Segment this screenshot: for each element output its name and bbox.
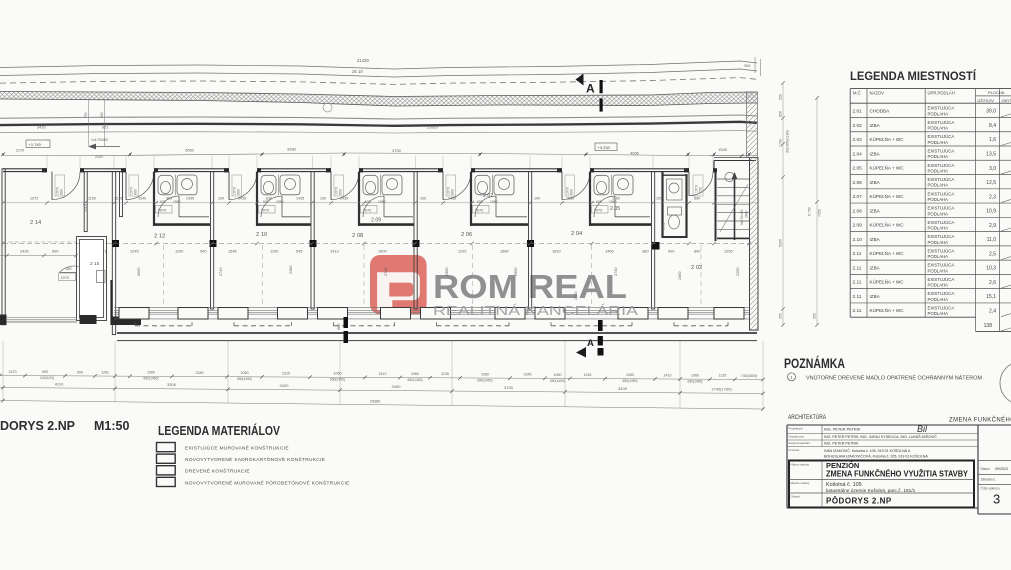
svg-text:ING. PETER PETRIK, ING. JURAJ: ING. PETER PETRIK, ING. JURAJ KYSELICA, … xyxy=(824,434,937,439)
svg-text:2740: 2740 xyxy=(574,292,578,300)
svg-text:EXISTUJÚCA: EXISTUJÚCA xyxy=(928,248,955,253)
svg-text:1560: 1560 xyxy=(378,200,386,204)
svg-text:2,5: 2,5 xyxy=(989,251,996,257)
svg-text:BOHUSLAVA IZAKOVIČOVÁ, Košolná: BOHUSLAVA IZAKOVIČOVÁ, Košolná č. 105, 9… xyxy=(824,454,928,459)
svg-text:2360: 2360 xyxy=(678,272,682,280)
svg-text:2470: 2470 xyxy=(9,370,17,374)
svg-text:7250: 7250 xyxy=(818,209,822,217)
svg-text:250: 250 xyxy=(813,313,817,319)
svg-text:1970: 1970 xyxy=(233,187,237,195)
svg-text:1150: 1150 xyxy=(88,196,96,200)
svg-text:900: 900 xyxy=(668,249,675,254)
svg-text:Obsah: Obsah xyxy=(791,495,800,499)
svg-text:EXISTUJÚCE MUROVANÉ KONŠTRUKCI: EXISTUJÚCE MUROVANÉ KONŠTRUKCIE xyxy=(185,445,289,452)
svg-text:600: 600 xyxy=(66,267,72,271)
svg-text:EXISTUJÚCA: EXISTUJÚCA xyxy=(928,163,955,168)
svg-text:katastrálne územie Košolná, pa: katastrálne územie Košolná, parc.č. 181/… xyxy=(826,488,916,494)
svg-text:+3.230: +3.230 xyxy=(598,145,611,150)
svg-text:2410: 2410 xyxy=(664,373,672,377)
svg-text:1460: 1460 xyxy=(605,249,614,254)
svg-text:IZBA: IZBA xyxy=(870,180,881,185)
svg-text:300-850(1180): 300-850(1180) xyxy=(786,130,790,153)
svg-text:1970: 1970 xyxy=(594,208,604,213)
svg-text:2.03: 2.03 xyxy=(853,137,863,143)
svg-text:980: 980 xyxy=(337,324,341,330)
svg-text:1560: 1560 xyxy=(173,200,181,204)
svg-text:39,0: 39,0 xyxy=(986,109,996,115)
svg-text:2.11: 2.11 xyxy=(853,265,862,271)
svg-text:2.09: 2.09 xyxy=(853,223,863,229)
svg-text:1560: 1560 xyxy=(609,200,617,204)
svg-text:500: 500 xyxy=(77,370,83,374)
svg-text:A: A xyxy=(586,82,595,96)
svg-text:1060: 1060 xyxy=(241,371,249,375)
svg-text:100: 100 xyxy=(420,196,426,200)
svg-text:250: 250 xyxy=(779,313,783,319)
svg-text:IZBA: IZBA xyxy=(870,237,881,242)
svg-text:1970: 1970 xyxy=(475,208,485,213)
svg-text:1413: 1413 xyxy=(330,249,339,254)
svg-text:1680: 1680 xyxy=(500,249,509,254)
svg-text:1970: 1970 xyxy=(695,185,699,193)
svg-text:2 12: 2 12 xyxy=(154,234,165,240)
svg-text:PODLAHA: PODLAHA xyxy=(928,168,949,173)
svg-text:2345: 2345 xyxy=(524,373,532,377)
svg-text:2740: 2740 xyxy=(614,268,618,276)
svg-text:PODLAHA: PODLAHA xyxy=(928,226,949,231)
svg-text:KÚPEĽŇA + WC: KÚPEĽŇA + WC xyxy=(870,193,905,199)
svg-text:1435: 1435 xyxy=(340,196,348,200)
svg-text:PODLAHA: PODLAHA xyxy=(928,311,949,316)
svg-text:2640: 2640 xyxy=(745,210,749,218)
svg-text:600: 600 xyxy=(365,200,371,204)
svg-text:1545: 1545 xyxy=(228,249,237,254)
svg-text:2430: 2430 xyxy=(20,249,29,254)
svg-text:800: 800 xyxy=(237,189,241,195)
svg-text:1800: 1800 xyxy=(566,196,574,200)
svg-text:800: 800 xyxy=(60,189,64,195)
svg-text:800: 800 xyxy=(451,189,455,195)
svg-text:PODLAHA: PODLAHA xyxy=(928,297,949,302)
svg-text:EXISTUJÚCA: EXISTUJÚCA xyxy=(928,148,955,153)
svg-text:1970: 1970 xyxy=(56,187,60,195)
svg-text:11,0: 11,0 xyxy=(987,237,997,243)
svg-text:LEGENDA MATERIÁLOV: LEGENDA MATERIÁLOV xyxy=(158,423,281,438)
svg-text:2.07: 2.07 xyxy=(853,194,863,200)
svg-text:DREVENÉ KONŠTRUKCIE: DREVENÉ KONŠTRUKCIE xyxy=(185,468,250,475)
svg-text:250: 250 xyxy=(779,94,783,100)
svg-text:1105: 1105 xyxy=(458,249,466,254)
svg-text:1560: 1560 xyxy=(490,200,498,204)
svg-text:2170: 2170 xyxy=(16,149,24,153)
svg-text:2.08: 2.08 xyxy=(853,208,863,214)
svg-text:IZBA: IZBA xyxy=(870,151,881,156)
svg-text:2,4: 2,4 xyxy=(989,308,996,314)
svg-text:CHODBA: CHODBA xyxy=(870,109,891,114)
svg-text:Názov stavby: Názov stavby xyxy=(791,463,810,467)
svg-text:1315: 1315 xyxy=(114,196,122,200)
svg-text:600: 600 xyxy=(263,200,269,204)
svg-text:3380: 3380 xyxy=(287,147,297,152)
svg-text:PODLAHA: PODLAHA xyxy=(928,183,949,188)
svg-text:940: 940 xyxy=(100,112,104,118)
svg-text:2.11: 2.11 xyxy=(853,251,862,257)
svg-text:2.01: 2.01 xyxy=(853,109,863,115)
svg-text:2 10: 2 10 xyxy=(256,232,267,238)
svg-text:NÁZOV: NÁZOV xyxy=(870,91,885,96)
svg-text:650(1450): 650(1450) xyxy=(687,380,702,384)
svg-text:2110: 2110 xyxy=(85,204,89,212)
svg-text:650(1450): 650(1450) xyxy=(622,379,637,383)
svg-text:500: 500 xyxy=(52,249,59,254)
svg-text:REALITNÁ KANCELÁRIA: REALITNÁ KANCELÁRIA xyxy=(433,303,639,318)
svg-text:1970: 1970 xyxy=(335,187,339,195)
svg-text:1972: 1972 xyxy=(30,196,38,200)
svg-text:1245: 1245 xyxy=(130,249,139,254)
svg-text:M1:50: M1:50 xyxy=(94,419,129,433)
svg-text:1060: 1060 xyxy=(334,372,342,376)
svg-text:2740: 2740 xyxy=(219,268,223,276)
svg-text:13,5: 13,5 xyxy=(986,151,996,157)
svg-text:2.03: 2.03 xyxy=(662,223,666,230)
svg-text:2 02: 2 02 xyxy=(691,265,702,271)
svg-text:2250: 2250 xyxy=(736,268,740,276)
svg-text:100: 100 xyxy=(320,196,326,200)
svg-text:2410: 2410 xyxy=(379,372,387,376)
svg-text:ÚŽITKOV: ÚŽITKOV xyxy=(978,98,995,103)
svg-text:NOVOVYTVORENÉ SADROKARTÓNOVÉ K: NOVOVYTVORENÉ SADROKARTÓNOVÉ KONŠTRUKCIE xyxy=(185,456,325,463)
svg-text:Vypracoval: Vypracoval xyxy=(789,435,805,439)
svg-text:1190: 1190 xyxy=(175,249,184,254)
svg-text:700: 700 xyxy=(699,187,703,193)
svg-text:2.02: 2.02 xyxy=(853,123,863,129)
svg-text:KÚPEĽŇA + WC: KÚPEĽŇA + WC xyxy=(870,165,905,171)
svg-text:KÚPEĽŇA + WC: KÚPEĽŇA + WC xyxy=(870,279,905,285)
svg-text:KÚPEĽŇA + WC: KÚPEĽŇA + WC xyxy=(870,136,905,142)
svg-text:380: 380 xyxy=(642,249,649,254)
svg-text:3420: 3420 xyxy=(37,125,46,130)
svg-text:3000: 3000 xyxy=(137,268,141,276)
svg-text:KÚPEĽŇA + WC: KÚPEĽŇA + WC xyxy=(870,222,905,228)
svg-text:1060: 1060 xyxy=(626,373,634,377)
svg-text:1435: 1435 xyxy=(238,196,246,200)
svg-text:1970: 1970 xyxy=(261,208,271,213)
svg-text:600: 600 xyxy=(477,200,483,204)
svg-text:IZBA: IZBA xyxy=(870,208,881,213)
svg-text:3400: 3400 xyxy=(618,386,628,391)
svg-text:OBYT: OBYT xyxy=(1002,99,1011,103)
svg-text:1135: 1135 xyxy=(441,372,449,376)
svg-text:545: 545 xyxy=(296,249,303,254)
svg-text:PLOCHA: PLOCHA xyxy=(988,90,1005,95)
svg-text:POZNÁMKA: POZNÁMKA xyxy=(784,356,845,371)
svg-text:2.11: 2.11 xyxy=(853,294,862,300)
svg-text:EXISTUJÚCA: EXISTUJÚCA xyxy=(928,263,955,268)
svg-text:1x170/450: 1x170/450 xyxy=(91,138,108,142)
svg-text:EXISTUJÚCA: EXISTUJÚCA xyxy=(928,106,955,111)
svg-text:800: 800 xyxy=(570,189,574,195)
svg-text:EXISTUJÚCA: EXISTUJÚCA xyxy=(928,291,955,296)
svg-text:100: 100 xyxy=(656,196,662,200)
svg-text:2 15: 2 15 xyxy=(90,261,100,267)
svg-text:650(1450): 650(1450) xyxy=(237,377,252,381)
svg-text:890: 890 xyxy=(694,196,700,200)
svg-text:22810: 22810 xyxy=(427,125,439,130)
svg-text:ARCHITEKTÚRA: ARCHITEKTÚRA xyxy=(788,412,826,421)
svg-text:PODLAHA: PODLAHA xyxy=(928,126,949,131)
svg-text:09/2023: 09/2023 xyxy=(995,467,1008,471)
svg-text:KÚPEĽŇA + WC: KÚPEĽŇA + WC xyxy=(870,307,905,313)
svg-text:2740: 2740 xyxy=(384,268,388,276)
svg-text:2.10: 2.10 xyxy=(853,237,863,243)
svg-text:1820: 1820 xyxy=(552,249,561,254)
svg-text:1060: 1060 xyxy=(481,372,489,376)
svg-text:2 06: 2 06 xyxy=(461,232,472,238)
svg-text:2360: 2360 xyxy=(289,266,293,274)
svg-text:EXISTUJÚCA: EXISTUJÚCA xyxy=(928,220,955,225)
svg-text:10,3: 10,3 xyxy=(986,266,996,272)
svg-text:10,9: 10,9 xyxy=(986,209,996,215)
svg-text:Košolná č. 105: Košolná č. 105 xyxy=(826,482,862,488)
svg-text:1340: 1340 xyxy=(138,196,146,200)
svg-text:PODLAHA: PODLAHA xyxy=(928,111,949,116)
svg-text:Číslo výkresu: Číslo výkresu xyxy=(981,486,1000,491)
svg-text:1435: 1435 xyxy=(186,196,194,200)
svg-text:ING. PETER PETRIK: ING. PETER PETRIK xyxy=(824,442,859,446)
svg-text:1545: 1545 xyxy=(718,147,728,152)
svg-text:EXISTUJÚCA: EXISTUJÚCA xyxy=(928,305,955,310)
svg-text:850: 850 xyxy=(779,111,783,117)
svg-text:PODLAHA: PODLAHA xyxy=(928,154,949,159)
svg-text:LEGENDA MIESTNOSTÍ: LEGENDA MIESTNOSTÍ xyxy=(850,69,977,83)
svg-text:IZBA: IZBA xyxy=(870,294,881,299)
svg-text:2315: 2315 xyxy=(282,371,290,375)
svg-text:2950: 2950 xyxy=(514,268,518,276)
svg-text:IZBA: IZBA xyxy=(870,123,881,128)
svg-text:750: 750 xyxy=(84,112,88,118)
svg-text:800: 800 xyxy=(134,189,138,195)
svg-text:2.11: 2.11 xyxy=(853,280,862,286)
svg-text:ING. PETER PETRIK: ING. PETER PETRIK xyxy=(824,428,861,432)
svg-text:Zákazka č.: Zákazka č. xyxy=(981,478,997,482)
svg-text:1261: 1261 xyxy=(101,370,109,374)
svg-text:4110: 4110 xyxy=(55,381,64,386)
svg-text:Dátum: Dátum xyxy=(981,467,991,471)
svg-text:Projektant: Projektant xyxy=(789,427,803,431)
svg-text:1135: 1135 xyxy=(719,374,727,378)
svg-text:800: 800 xyxy=(339,189,343,195)
svg-text:ÚPR.PODLÁH: ÚPR.PODLÁH xyxy=(928,91,955,96)
svg-text:1970: 1970 xyxy=(61,276,69,280)
svg-text:1970: 1970 xyxy=(158,208,168,213)
svg-text:2.05: 2.05 xyxy=(610,206,620,212)
svg-text:3: 3 xyxy=(993,492,1000,507)
svg-text:ROM REAL: ROM REAL xyxy=(433,268,627,305)
svg-text:KÚPEĽŇA + WC: KÚPEĽŇA + WC xyxy=(870,250,905,256)
svg-text:921: 921 xyxy=(102,125,109,130)
svg-text:1970: 1970 xyxy=(130,187,134,195)
svg-text:EXISTUJÚCA: EXISTUJÚCA xyxy=(928,206,955,211)
svg-text:IVAN IZAKOVIČ, Košolná č. 105,: IVAN IZAKOVIČ, Košolná č. 105, 919 01 KO… xyxy=(824,448,911,453)
svg-text:PÔDORYS 2.NP: PÔDORYS 2.NP xyxy=(826,497,892,506)
svg-text:25380: 25380 xyxy=(370,399,381,403)
svg-text:Miesto stavby: Miesto stavby xyxy=(791,481,810,485)
svg-text:EXISTUJÚCA: EXISTUJÚCA xyxy=(928,177,955,182)
svg-text:1250: 1250 xyxy=(724,249,733,254)
svg-text:1135: 1135 xyxy=(584,373,592,377)
svg-text:2.05: 2.05 xyxy=(853,166,863,172)
svg-text:ZMENA FUNKČNÉHO VYUŽITIA STAVB: ZMENA FUNKČNÉHO VYUŽITIA STAVBY xyxy=(826,470,969,479)
svg-text:1060: 1060 xyxy=(147,371,155,375)
svg-text:1060: 1060 xyxy=(411,372,419,376)
svg-text:Investor: Investor xyxy=(789,448,800,452)
svg-text:1160: 1160 xyxy=(612,196,620,200)
svg-text:PODLAHA: PODLAHA xyxy=(928,268,949,273)
svg-text:6.750: 6.750 xyxy=(808,207,812,216)
svg-text:138: 138 xyxy=(984,323,993,329)
svg-text:A: A xyxy=(587,338,594,349)
svg-text:1435: 1435 xyxy=(296,196,304,200)
svg-text:EXISTUJÚCA: EXISTUJÚCA xyxy=(928,234,955,239)
svg-text:2650: 2650 xyxy=(185,148,195,153)
svg-text:1970: 1970 xyxy=(363,208,373,213)
svg-text:2.09: 2.09 xyxy=(371,218,381,224)
svg-text:NOVOVYTVORENÉ MUROVANÉ PÓROBET: NOVOVYTVORENÉ MUROVANÉ PÓROBETÓNOVÉ KONŠ… xyxy=(185,479,350,486)
svg-text:1,6: 1,6 xyxy=(989,137,996,143)
svg-text:740(1500): 740(1500) xyxy=(741,374,757,378)
svg-text:21430: 21430 xyxy=(357,58,370,63)
svg-text:1600: 1600 xyxy=(378,249,387,254)
svg-text:890: 890 xyxy=(694,249,701,254)
svg-text:1730: 1730 xyxy=(779,139,783,147)
svg-text:EXISTUJÚCA: EXISTUJÚCA xyxy=(928,134,955,139)
svg-text:3420: 3420 xyxy=(280,383,290,388)
svg-text:3700: 3700 xyxy=(504,385,514,390)
svg-text:2 04: 2 04 xyxy=(571,231,583,237)
svg-text:2,9: 2,9 xyxy=(989,223,996,229)
svg-text:+1.740: +1.740 xyxy=(29,142,42,147)
svg-text:650(1450): 650(1450) xyxy=(143,377,158,381)
svg-text:2345: 2345 xyxy=(196,371,204,375)
svg-text:3400: 3400 xyxy=(392,384,402,389)
svg-text:650(1450): 650(1450) xyxy=(330,378,345,382)
svg-text:PODLAHA: PODLAHA xyxy=(928,211,949,216)
svg-text:100: 100 xyxy=(218,196,224,200)
svg-text:1060: 1060 xyxy=(691,374,699,378)
svg-text:PODLAHA: PODLAHA xyxy=(928,254,949,259)
svg-text:5290: 5290 xyxy=(779,239,783,247)
svg-text:300: 300 xyxy=(744,64,750,68)
svg-text:1970: 1970 xyxy=(566,187,570,195)
svg-text:ZMENA FUNKČNÉHO V: ZMENA FUNKČNÉHO V xyxy=(949,417,1011,424)
svg-text:EXISTUJÚCA: EXISTUJÚCA xyxy=(928,277,955,282)
svg-text:3,0: 3,0 xyxy=(989,166,996,172)
svg-text:9x170/450: 9x170/450 xyxy=(740,209,744,225)
svg-text:25 10: 25 10 xyxy=(352,69,363,74)
svg-text:PODLAHA: PODLAHA xyxy=(928,197,949,202)
svg-text:2,3: 2,3 xyxy=(989,194,996,200)
svg-text:2 14: 2 14 xyxy=(30,220,42,226)
svg-text:15,1: 15,1 xyxy=(986,294,996,300)
svg-text:400: 400 xyxy=(166,196,172,200)
svg-text:2.07: 2.07 xyxy=(483,193,493,199)
svg-text:2.11: 2.11 xyxy=(853,308,862,314)
svg-text:1740(1760): 1740(1760) xyxy=(711,387,732,392)
svg-text:2.06: 2.06 xyxy=(853,180,863,186)
svg-text:3700: 3700 xyxy=(392,148,402,153)
svg-text:650(1450): 650(1450) xyxy=(407,378,422,382)
svg-text:2,6: 2,6 xyxy=(989,280,996,286)
svg-text:650(1450): 650(1450) xyxy=(550,379,565,383)
svg-text:2.04: 2.04 xyxy=(853,151,863,157)
svg-text:650(1450): 650(1450) xyxy=(477,378,492,382)
svg-text:IZBA: IZBA xyxy=(870,265,881,270)
svg-text:1060: 1060 xyxy=(554,373,562,377)
svg-text:PODLAHA: PODLAHA xyxy=(928,140,949,145)
svg-text:PODLAHA: PODLAHA xyxy=(928,283,949,288)
svg-text:600: 600 xyxy=(596,200,602,204)
svg-text:M.Č: M.Č xyxy=(853,91,861,96)
svg-text:8,4: 8,4 xyxy=(989,123,996,129)
svg-text:1435: 1435 xyxy=(448,196,456,200)
svg-text:EXISTUJÚCA: EXISTUJÚCA xyxy=(928,191,955,196)
svg-text:PÔDORYS 2.NP: PÔDORYS 2.NP xyxy=(0,418,75,433)
svg-text:4055: 4055 xyxy=(630,151,640,156)
svg-text:12,5: 12,5 xyxy=(986,180,996,186)
svg-text:140(1/20): 140(1/20) xyxy=(40,376,54,380)
svg-text:540: 540 xyxy=(200,249,207,254)
svg-text:600: 600 xyxy=(160,200,166,204)
svg-text:2360: 2360 xyxy=(445,268,449,276)
svg-text:1190: 1190 xyxy=(270,249,279,254)
svg-text:PODLAHA: PODLAHA xyxy=(928,240,949,245)
svg-text:Zodp.projektant: Zodp.projektant xyxy=(789,441,811,445)
svg-text:500: 500 xyxy=(42,370,48,374)
svg-text:EXISTUJÚCA: EXISTUJÚCA xyxy=(928,120,955,125)
svg-text:1560: 1560 xyxy=(276,200,284,204)
svg-text:Bil: Bil xyxy=(917,424,928,434)
svg-text:1970: 1970 xyxy=(447,187,451,195)
svg-text:3300: 3300 xyxy=(167,382,177,387)
svg-text:630: 630 xyxy=(266,196,272,200)
svg-text:VNÚTORNÉ DREVENÉ MADLO OPATREN: VNÚTORNÉ DREVENÉ MADLO OPATRENÉ OCHRANNÝ… xyxy=(806,375,983,382)
svg-text:100: 100 xyxy=(534,196,540,200)
svg-text:2 08: 2 08 xyxy=(352,233,363,239)
